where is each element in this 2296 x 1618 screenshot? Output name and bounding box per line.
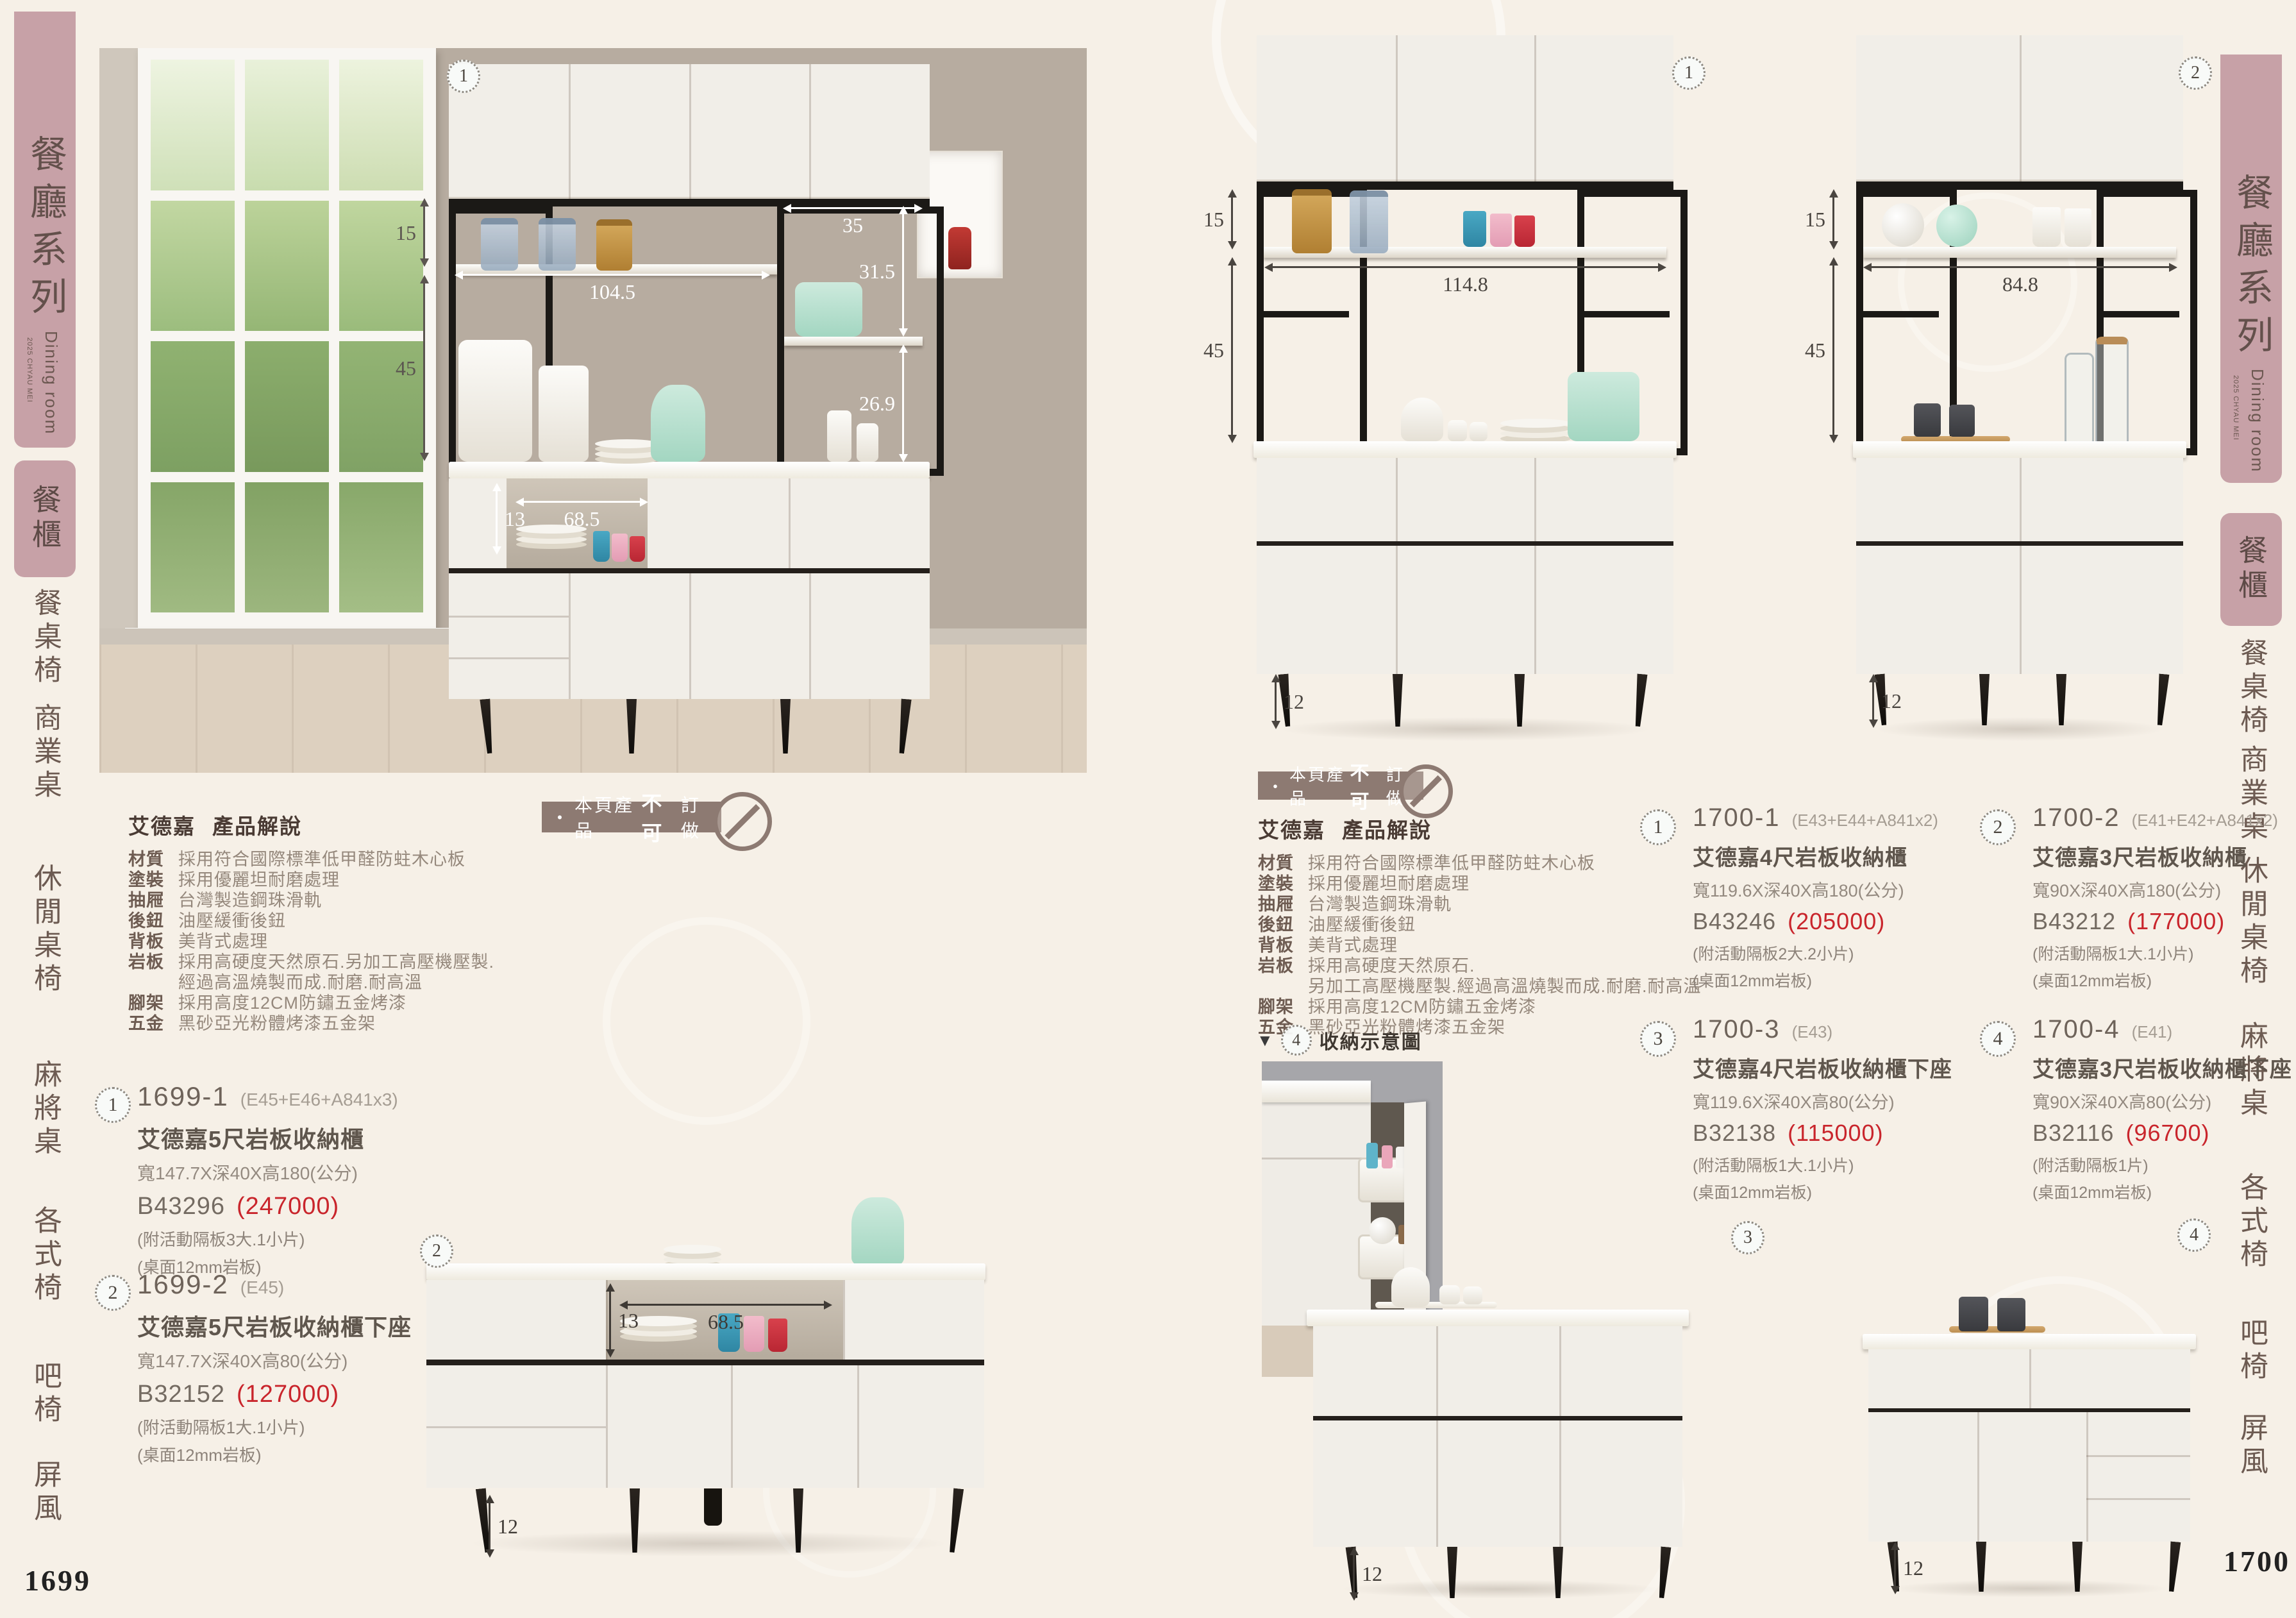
spec-value: 採用優麗坦耐磨處理 xyxy=(1308,873,1470,894)
product-price: (205000) xyxy=(1788,908,1885,935)
spec-row: 材質採用符合國際標準低甲醛防蛀木心板 xyxy=(128,849,590,870)
tab-label: 屏風 xyxy=(2231,1413,2272,1479)
prop-black-mug xyxy=(1949,405,1975,437)
product-model-row: 1700-2(E41+E42+A841x2) xyxy=(2032,803,2296,832)
drawer-row xyxy=(1856,458,2183,544)
product-badge: 3 xyxy=(1640,1021,1676,1057)
sidebar-left-item-0[interactable]: 餐桌椅 xyxy=(14,577,76,699)
dimension-line: 15 xyxy=(1832,193,1834,246)
dimension-line: 104.5 xyxy=(458,274,766,276)
floor-shadow xyxy=(449,1530,968,1558)
dimension-line: 68.5 xyxy=(519,501,644,503)
door-seam xyxy=(857,1365,859,1488)
prop-amber-jar xyxy=(1292,189,1332,253)
series-title: 餐廳系列 xyxy=(2224,173,2278,363)
cabinet-leg xyxy=(625,699,638,754)
product-size: 寬147.7X深40X高180(公分) xyxy=(137,1159,483,1185)
product-code: B32138 xyxy=(1693,1120,1776,1147)
prop-bottle xyxy=(2065,353,2094,445)
door-seam xyxy=(1396,35,1398,181)
door-seam xyxy=(2086,1412,2088,1542)
spec-key: 塗裝 xyxy=(1258,873,1295,894)
accent-line xyxy=(449,568,930,573)
product-model: 1699-2 xyxy=(137,1269,229,1300)
door-seam xyxy=(689,573,691,699)
door-seam xyxy=(606,1365,608,1488)
spec-value: 台灣製造鋼珠滑軌 xyxy=(1308,894,1452,914)
tab-label: 吧椅 xyxy=(24,1361,65,1428)
dimension-label: 12 xyxy=(498,1516,518,1537)
banner-text: 訂做 xyxy=(681,791,712,843)
hutch-shelf xyxy=(1863,247,2176,258)
window xyxy=(138,48,436,630)
drawer-seam xyxy=(1436,1326,1438,1416)
sidebar-right-item-0[interactable]: 餐桌椅 xyxy=(2220,628,2282,747)
spec-row: 後鈕油壓緩衝後鈕 xyxy=(1258,914,1720,935)
brand-name: 艾德嘉 xyxy=(128,814,196,838)
spec-row: 後鈕油壓緩衝後鈕 xyxy=(128,911,590,931)
product-name: 艾德嘉4尺岩板收納櫃下座 xyxy=(1693,1052,2039,1083)
spec-key: 塗裝 xyxy=(128,870,165,890)
spec-row: 腳架採用高度12CM防鏽五金烤漆 xyxy=(128,993,590,1013)
dimension-label: 35 xyxy=(842,215,863,235)
prop-mug xyxy=(2065,208,2091,247)
product-model: 1700-3 xyxy=(1693,1015,1781,1044)
dimension-label: 15 xyxy=(1203,209,1224,230)
prop-cup-pink xyxy=(612,534,628,562)
no-order-slash xyxy=(725,804,760,839)
door-seam xyxy=(809,64,811,199)
spec-row: 塗裝採用優麗坦耐磨處理 xyxy=(128,870,590,890)
dimension-line: 45 xyxy=(1231,261,1233,439)
prop-round-jar-mint xyxy=(1936,205,1977,247)
floor-shadow xyxy=(1863,716,2177,742)
dimension-line: 12 xyxy=(1353,1551,1355,1597)
product-size: 寬90X深40X高180(公分) xyxy=(2032,877,2296,902)
prop-teacup xyxy=(1463,1286,1482,1304)
product-code: B32152 xyxy=(137,1381,225,1408)
accent-line xyxy=(1257,541,1673,546)
tab-label: 麻將桌 xyxy=(24,1059,65,1159)
prop-bottle-blue xyxy=(1366,1143,1378,1168)
product-photo-1700-1: 15 45 114.8 12 xyxy=(1218,35,1686,766)
sideboard-body xyxy=(426,1280,984,1488)
door-seam xyxy=(1534,546,1536,674)
product-note: (附活動隔板1大.1小片) xyxy=(2032,941,2296,965)
window-pane xyxy=(339,482,423,613)
spec-value: 採用高度12CM防鏽五金烤漆 xyxy=(178,993,406,1013)
product-size: 寬119.6X深40X高180(公分) xyxy=(1693,877,2039,902)
spec-key: 岩板 xyxy=(1258,956,1295,976)
spec-key xyxy=(128,972,165,993)
product-name: 艾德嘉3尺岩板收納櫃下座 xyxy=(2032,1052,2296,1083)
accent-line xyxy=(426,1360,984,1365)
dimension-label: 13 xyxy=(505,509,525,529)
spec-key: 後鈕 xyxy=(128,911,165,931)
door-seam xyxy=(569,64,571,199)
banner-dot: ・ xyxy=(551,804,571,830)
frame-crossbar xyxy=(2100,311,2179,317)
window-pane xyxy=(245,201,329,332)
spec-key: 抽屜 xyxy=(128,890,165,911)
dimension-line: 114.8 xyxy=(1268,266,1663,268)
spec-value: 採用優麗坦耐磨處理 xyxy=(178,870,340,890)
product-model: 1700-4 xyxy=(2032,1015,2120,1044)
center-adjuster-foot xyxy=(704,1488,722,1526)
series-subtitle-en: Dining room xyxy=(2247,369,2267,473)
tab-label: 餐桌椅 xyxy=(2231,638,2272,738)
product-combo: (E45) xyxy=(240,1277,284,1298)
spec-row: 抽屜台灣製造鋼珠滑軌 xyxy=(1258,894,1720,914)
spec-value: 美背式處理 xyxy=(178,931,268,952)
product-note: (附活動隔板2大.2小片) xyxy=(1693,941,2039,965)
accent-line xyxy=(1313,1416,1682,1420)
prop-cup-pink xyxy=(1490,214,1512,247)
frame-crossbar xyxy=(1860,311,1939,317)
spec-value: 採用高度12CM防鏽五金烤漆 xyxy=(1308,997,1536,1017)
product-photo-1700-2: 15 84.8 45 12 xyxy=(1840,35,2199,766)
product-combo: (E43) xyxy=(1792,1022,1833,1042)
dimension-label: 68.5 xyxy=(564,509,600,529)
drawer-seam xyxy=(843,1280,845,1360)
panel-seam xyxy=(1262,1158,1371,1159)
hutch-top-bar xyxy=(449,199,930,206)
tab-label: 餐櫃 xyxy=(2230,535,2272,604)
prop-bottle-pink xyxy=(1382,1145,1393,1168)
product-note: (桌面12mm岩板) xyxy=(2032,1180,2296,1203)
prop-bowl-stack xyxy=(664,1245,721,1254)
spec-row: 另加工高壓機壓製.經過高溫燒製而成.耐磨.耐高溫 xyxy=(1258,976,1720,997)
floor-shadow xyxy=(1879,1579,2180,1598)
dimension-label: 104.5 xyxy=(589,282,635,302)
tab-label: 吧椅 xyxy=(2231,1318,2272,1385)
brand-name: 艾德嘉 xyxy=(1258,818,1325,842)
dimension-label: 26.9 xyxy=(859,393,895,414)
banner-text: 本頁產品 xyxy=(574,791,637,843)
counter-top xyxy=(1253,441,1677,458)
triangle-marker-icon: ▼ xyxy=(1257,1031,1273,1050)
lower-doors xyxy=(1856,546,2183,674)
dimension-label: 12 xyxy=(1881,691,1902,711)
prop-glass-jar xyxy=(539,218,576,271)
door-seam xyxy=(1436,1420,1438,1547)
window-pane xyxy=(151,60,235,190)
banner-text-bold: 不可 xyxy=(641,788,677,847)
prop-teapot xyxy=(1401,398,1443,441)
spec-title: 艾德嘉產品解說 xyxy=(128,809,590,840)
product-price: (177000) xyxy=(2127,908,2225,935)
counter-top xyxy=(1307,1310,1689,1326)
spec-key: 後鈕 xyxy=(1258,914,1295,935)
product-price-row: B43246(205000) xyxy=(1693,908,2039,935)
drawer-seam xyxy=(2086,1498,2190,1500)
drawer-seam xyxy=(1559,1326,1561,1416)
cabinet-leg xyxy=(2154,673,2171,725)
spec-title-text: 產品解說 xyxy=(212,814,302,838)
accent-line xyxy=(1868,1408,2190,1412)
sidebar-left-item-4[interactable]: 各式椅 xyxy=(14,1204,76,1307)
prop-jar xyxy=(1369,1217,1396,1244)
banner-text-bold: 不可 xyxy=(1350,757,1382,814)
accent-line xyxy=(1856,541,2183,546)
product-code: B43296 xyxy=(137,1193,225,1220)
dimension-line: 31.5 xyxy=(902,210,904,333)
sidebar-right-item-5[interactable]: 吧椅 xyxy=(2220,1316,2282,1386)
product-size: 寬119.6X深40X高80(公分) xyxy=(1693,1088,2039,1113)
window-pane xyxy=(151,482,235,613)
sidebar-left-item-6[interactable]: 屏風 xyxy=(14,1457,76,1529)
prop-teacup xyxy=(1448,420,1467,441)
product-note: (桌面12mm岩板) xyxy=(1693,968,2039,991)
spec-row: 塗裝採用優麗坦耐磨處理 xyxy=(1258,873,1720,894)
prop-bottle-cork xyxy=(2095,337,2129,451)
cabinet-body xyxy=(1313,1326,1682,1547)
window-pane xyxy=(151,201,235,332)
page-number-right: 1700 xyxy=(2224,1544,2290,1578)
spec-row: 岩板採用高硬度天然原石. xyxy=(1258,956,1720,976)
product-note: (附活動隔板1片) xyxy=(2032,1153,2296,1176)
spec-row: 材質採用符合國際標準低甲醛防蛀木心板 xyxy=(1258,853,1720,873)
dimension-label: 15 xyxy=(1805,209,1825,230)
storage-badge: 4 xyxy=(1281,1025,1312,1056)
product-badge: 4 xyxy=(1980,1021,2016,1057)
dimension-line: 68.5 xyxy=(623,1304,828,1306)
no-order-icon xyxy=(713,792,772,851)
prop-mug xyxy=(2032,207,2061,247)
dimension-line: 12 xyxy=(489,1499,490,1554)
no-order-icon xyxy=(1399,764,1453,818)
dimension-label: 68.5 xyxy=(708,1311,744,1332)
upper-cabinet xyxy=(1257,35,1673,181)
lower-doors xyxy=(449,573,930,699)
series-subtitle-en: Dining room xyxy=(41,331,61,435)
prop-thermo-pot xyxy=(539,366,589,462)
counter-top xyxy=(426,1263,985,1280)
prop-teapot xyxy=(1391,1267,1430,1307)
spec-key: 背板 xyxy=(1258,935,1295,956)
no-custom-banner-right: ・ 本頁產品 不可 訂做 xyxy=(1258,771,1423,800)
product-photo-1699-2: 13 68.5 12 xyxy=(417,1190,994,1558)
drawer-seam xyxy=(449,616,569,618)
dimension-line: 13 xyxy=(496,487,498,551)
door-seam xyxy=(1559,1420,1561,1547)
spec-value: 油壓緩衝後鈕 xyxy=(178,911,286,931)
spec-row: 經過高溫燒製而成.耐磨.耐高溫 xyxy=(128,972,590,993)
dimension-line: 15 xyxy=(423,202,425,263)
dimension-label: 45 xyxy=(396,358,416,378)
spec-key: 岩板 xyxy=(128,952,165,972)
prop-black-mug xyxy=(1914,403,1941,437)
product-combo: (E41+E42+A841x2) xyxy=(2132,811,2278,830)
product-name: 艾德嘉3尺岩板收納櫃 xyxy=(2032,840,2296,872)
spec-value: 油壓緩衝後鈕 xyxy=(1308,914,1416,935)
spec-value: 採用高硬度天然原石. xyxy=(1308,956,1475,976)
sidebar-left-item-2[interactable]: 休閒桌椅 xyxy=(14,866,76,994)
product-combo: (E45+E46+A841x3) xyxy=(240,1090,398,1110)
dimension-label: 12 xyxy=(1903,1558,1923,1578)
spec-row: 岩板採用高硬度天然原石.另加工高壓機壓製. xyxy=(128,952,590,972)
dimension-label: 45 xyxy=(1805,340,1825,360)
product-model: 1700-2 xyxy=(2032,803,2120,832)
tab-label: 各式椅 xyxy=(24,1206,65,1306)
spec-key: 抽屜 xyxy=(1258,894,1295,914)
dimension-line: 84.8 xyxy=(1867,266,2174,268)
door-seam xyxy=(569,573,571,699)
photo-badge-2: 2 xyxy=(2179,56,2212,90)
dimension-line: 12 xyxy=(1872,678,1874,724)
prop-glass-jar xyxy=(481,218,518,271)
product-note: (桌面12mm岩板) xyxy=(1693,1180,2039,1203)
upper-cabinet xyxy=(449,64,930,199)
spec-key: 材質 xyxy=(128,849,165,870)
product-model: 1699-1 xyxy=(137,1081,229,1112)
prop-canister xyxy=(857,423,878,462)
no-order-slash xyxy=(1410,775,1442,807)
series-year: 2025 CHYAU MEI xyxy=(2232,375,2240,441)
spec-key: 背板 xyxy=(128,931,165,952)
spec-row: 抽屜台灣製造鋼珠滑軌 xyxy=(128,890,590,911)
drawer-seam xyxy=(789,478,791,568)
product-card-1700-2: 1700-2(E41+E42+A841x2) 艾德嘉3尺岩板收納櫃 寬90X深4… xyxy=(2032,803,2296,991)
spec-value: 採用高硬度天然原石.另加工高壓機壓製. xyxy=(178,952,494,972)
cabinet-leg xyxy=(895,698,912,754)
spec-key xyxy=(1258,976,1295,997)
sidebar-right-tab-active[interactable]: 餐櫃 xyxy=(2220,513,2282,626)
counter-top xyxy=(449,462,930,478)
drawer-seam xyxy=(1396,458,1398,544)
prop-bread-maker xyxy=(458,340,532,462)
prop-cup-red xyxy=(768,1319,787,1352)
counter-top xyxy=(1853,441,2186,458)
photo-badge-2: 2 xyxy=(420,1235,453,1268)
prop-cup-teal xyxy=(593,531,610,562)
tab-label: 餐桌椅 xyxy=(24,588,65,688)
prop-black-mug xyxy=(1959,1297,1988,1331)
storage-label: 收納示意圖 xyxy=(1320,1026,1422,1054)
product-note: (桌面12mm岩板) xyxy=(2032,968,2296,991)
product-badge: 2 xyxy=(1980,809,2016,845)
spec-value: 美背式處理 xyxy=(1308,935,1398,956)
product-model: 1700-1 xyxy=(1693,803,1781,832)
product-combo: (E41) xyxy=(2132,1022,2173,1042)
cabinet-leg xyxy=(1631,673,1648,727)
product-size: 寬90X深40X高80(公分) xyxy=(2032,1088,2296,1113)
spec-block-left: 艾德嘉產品解說 材質採用符合國際標準低甲醛防蛀木心板 塗裝採用優麗坦耐磨處理 抽… xyxy=(128,809,590,1034)
sidebar-left-tab-active[interactable]: 餐櫃 xyxy=(14,460,76,577)
drawer-seam xyxy=(449,657,569,659)
tab-label: 休閒桌椅 xyxy=(24,863,65,997)
photo-badge-3: 3 xyxy=(1731,1221,1764,1254)
hutch-top-bar xyxy=(1856,181,2183,190)
sidebar-left-item-5[interactable]: 吧椅 xyxy=(14,1358,76,1430)
cabinet-1699-1 xyxy=(449,64,930,754)
prop-plate-stack xyxy=(595,439,659,448)
dimension-label: 31.5 xyxy=(859,261,895,282)
spec-key: 五金 xyxy=(128,1013,165,1034)
dimension-label: 114.8 xyxy=(1443,274,1488,294)
room-photo-1699-1: 15 45 104.5 35 31.5 26.9 13 68.5 xyxy=(99,48,1087,773)
dimension-label: 84.8 xyxy=(2002,274,2038,294)
dimension-label: 45 xyxy=(1203,340,1224,360)
prop-amber-jar xyxy=(596,219,632,271)
sidebar-left-item-1[interactable]: 商業桌 xyxy=(14,704,76,802)
drawer-seam xyxy=(426,1426,606,1428)
drawer-row xyxy=(1257,458,1673,544)
upper-cabinet xyxy=(1856,35,2183,181)
prop-teacup xyxy=(1439,1285,1460,1304)
drawer-seam xyxy=(2086,1455,2190,1457)
prop-kettle xyxy=(851,1197,904,1265)
red-vase xyxy=(948,227,971,269)
lower-doors xyxy=(1257,546,1673,674)
spec-row: 五金黑砂亞光粉體烤漆五金架 xyxy=(128,1013,590,1034)
door-seam xyxy=(731,1365,733,1488)
product-price-row: B43212(177000) xyxy=(2032,908,2296,935)
counter-top xyxy=(1863,1334,2196,1349)
no-custom-banner-left: ・ 本頁產品 不可 訂做 xyxy=(542,802,721,832)
product-price: (127000) xyxy=(237,1381,339,1408)
product-price-row: B32116(96700) xyxy=(2032,1120,2296,1147)
spec-row: 背板美背式處理 xyxy=(128,931,590,952)
spec-value: 採用符合國際標準低甲醛防蛀木心板 xyxy=(178,849,465,870)
spec-row: 腳架採用高度12CM防鏽五金烤漆 xyxy=(1258,997,1720,1017)
product-badge: 1 xyxy=(95,1087,131,1123)
spec-title-text: 產品解說 xyxy=(1342,818,1432,842)
series-title: 餐廳系列 xyxy=(18,135,72,324)
product-code: B43212 xyxy=(2032,908,2116,935)
prop-glass-jar xyxy=(1350,190,1388,253)
drawer-seam xyxy=(2020,458,2022,544)
product-price: (96700) xyxy=(2125,1120,2209,1147)
product-price-row: B32138(115000) xyxy=(1693,1120,2039,1147)
drawer-seam xyxy=(1534,458,1536,544)
photo-badge-1: 1 xyxy=(447,60,480,93)
product-badge: 2 xyxy=(95,1275,131,1311)
decor-ring xyxy=(603,917,810,1125)
prop-cup-pink xyxy=(744,1316,764,1352)
dimension-label: 12 xyxy=(1284,691,1304,712)
dimension-line: 45 xyxy=(1832,261,1834,439)
product-price: (247000) xyxy=(237,1193,339,1220)
product-badge: 1 xyxy=(1640,809,1676,845)
cabinet-body xyxy=(1868,1349,2190,1542)
tab-label: 屏風 xyxy=(24,1460,65,1526)
product-combo: (E43+E44+A841x2) xyxy=(1792,811,1938,830)
spec-key: 材質 xyxy=(1258,853,1295,873)
product-code: B32116 xyxy=(2032,1120,2114,1147)
drawer-seam xyxy=(606,1280,608,1360)
dimension-line: 12 xyxy=(1275,678,1277,725)
product-card-1700-4: 1700-4(E41) 艾德嘉3尺岩板收納櫃下座 寬90X深40X高80(公分)… xyxy=(2032,1015,2296,1203)
prop-kettle xyxy=(651,385,705,462)
spec-row: 背板美背式處理 xyxy=(1258,935,1720,956)
spec-value: 台灣製造鋼珠滑軌 xyxy=(178,890,322,911)
dimension-label: 12 xyxy=(1362,1563,1382,1584)
prop-toaster xyxy=(795,282,862,337)
catalog-spread: 餐廳系列 Dining room 2025 CHYAU MEI 餐櫃 餐桌椅 商… xyxy=(0,0,2296,1618)
window-pane xyxy=(339,60,423,190)
dimension-line: 26.9 xyxy=(902,348,904,459)
sidebar-left-item-3[interactable]: 麻將桌 xyxy=(14,1058,76,1161)
prop-cup-red xyxy=(1514,215,1535,247)
product-photo-1700-3: 12 xyxy=(1302,1276,1699,1597)
spec-block-right: 艾德嘉產品解說 材質採用符合國際標準低甲醛防蛀木心板 塗裝採用優麗坦耐磨處理 抽… xyxy=(1258,813,1720,1038)
prop-toaster xyxy=(1568,372,1639,441)
product-note: (附活動隔板1大.1小片) xyxy=(1693,1153,2039,1176)
sidebar-right-item-6[interactable]: 屏風 xyxy=(2220,1411,2282,1481)
window-pane xyxy=(339,201,423,332)
sidebar-left-header: 餐廳系列 Dining room 2025 CHYAU MEI xyxy=(14,12,76,448)
